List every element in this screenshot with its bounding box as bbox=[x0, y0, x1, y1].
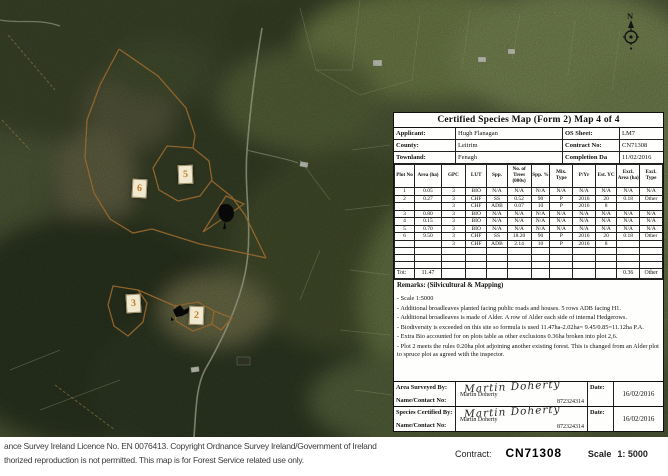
cell-excl-area bbox=[617, 248, 640, 255]
cell-spp-pct bbox=[531, 262, 550, 269]
col-spp-pct: Spp. % bbox=[531, 165, 550, 188]
species-table-header-row: Plot No Area (ha) GPC LUT Spp. No. of Tr… bbox=[395, 165, 663, 188]
form-title: Certified Species Map (Form 2) Map 4 of … bbox=[394, 113, 663, 128]
cell-plot-no bbox=[395, 248, 415, 255]
cell-excl-area bbox=[617, 240, 640, 248]
cell-p-yr: N/A bbox=[573, 225, 596, 233]
species-table-body: 1 0.05 3 BIO N/A N/A N/A N/A N/A N/A N/A… bbox=[395, 188, 663, 269]
area-surveyed-by-label: Area Surveyed By: bbox=[396, 384, 453, 391]
cell-gpc: 3 bbox=[441, 233, 465, 241]
cell-excl-type bbox=[640, 255, 663, 262]
cell-gpc bbox=[441, 248, 465, 255]
cell-plot-no: 1 bbox=[395, 188, 415, 196]
surveyor-signature-box: Martin Doherty Martin Doherty 872324314 bbox=[456, 382, 588, 406]
cell-lut bbox=[466, 248, 487, 255]
cell-spp: N/A bbox=[487, 210, 507, 218]
cell-excl-area: N/A bbox=[617, 188, 640, 196]
cell-no-of-trees: N/A bbox=[507, 210, 531, 218]
cell-spp-pct: 90 bbox=[531, 195, 550, 203]
cell-excl-type: N/A bbox=[640, 225, 663, 233]
table-row: 5 0.70 3 BIO N/A N/A N/A N/A N/A N/A N/A… bbox=[395, 225, 663, 233]
applicant-info-grid: Applicant: Hugh Flanagan OS Sheet: LM7 C… bbox=[394, 128, 663, 164]
cell-excl-area: N/A bbox=[617, 210, 640, 218]
north-label: N bbox=[627, 11, 634, 21]
cell-gpc: 3 bbox=[441, 188, 465, 196]
cell-mix-type bbox=[550, 255, 573, 262]
cell-no-of-trees bbox=[507, 262, 531, 269]
survey-date-label: Date: bbox=[588, 382, 614, 406]
applicant-label: Applicant: bbox=[394, 128, 456, 140]
certifier-printed-name: Martin Doherty bbox=[460, 417, 498, 423]
cell-no-of-trees: 0.07 bbox=[507, 203, 531, 211]
species-table: Plot No Area (ha) GPC LUT Spp. No. of Tr… bbox=[394, 164, 663, 279]
surveyor-contact-no: 872324314 bbox=[557, 399, 584, 405]
county-value: Leitrim bbox=[456, 140, 563, 152]
remarks-section: Remarks: (Silvicultural & Mapping) - Sca… bbox=[394, 279, 663, 381]
cell-excl-type: Other bbox=[640, 233, 663, 241]
plot-marker-6: 6 bbox=[132, 179, 148, 199]
cell-est-yc bbox=[595, 255, 616, 262]
cell-est-yc: 20 bbox=[595, 233, 616, 241]
cell-area bbox=[415, 240, 442, 248]
cell-mix-type: P bbox=[550, 195, 573, 203]
os-sheet-value: LM7 bbox=[620, 128, 663, 140]
cell-gpc bbox=[441, 255, 465, 262]
table-row: 3 0.80 3 BIO N/A N/A N/A N/A N/A N/A N/A… bbox=[395, 210, 663, 218]
cell-spp-pct bbox=[531, 255, 550, 262]
table-row: 6 9.50 3 CHF SS 18.20 90 P 2016 20 0.18 … bbox=[395, 233, 663, 241]
remark-line: - Plot 2 meets the rules 0.20ha plot adj… bbox=[397, 343, 660, 360]
certifier-signature-box: Martin Doherty Martin Doherty 872324314 bbox=[456, 407, 588, 431]
col-lut: LUT bbox=[466, 165, 487, 188]
cell-lut: BIO bbox=[466, 225, 487, 233]
contract-no-label: Contract No: bbox=[563, 140, 620, 152]
remark-line: - Extra Bio accounted for on plots table… bbox=[397, 333, 660, 342]
cell-no-of-trees bbox=[507, 255, 531, 262]
cell-gpc: 3 bbox=[441, 210, 465, 218]
cell-no-of-trees: 0.52 bbox=[507, 195, 531, 203]
certify-date-value: 16/02/2016 bbox=[614, 407, 663, 431]
remarks-list: - Scale 1:5000 - Additional broadleaves … bbox=[397, 295, 660, 360]
cell-spp-pct: N/A bbox=[531, 225, 550, 233]
cell-est-yc: 8 bbox=[595, 203, 616, 211]
cell-spp: N/A bbox=[487, 225, 507, 233]
screenshot-root: N 5 6 3 2 Certified Species Map (Form 2)… bbox=[0, 0, 668, 476]
cell-excl-area bbox=[617, 255, 640, 262]
species-form-panel: Certified Species Map (Form 2) Map 4 of … bbox=[393, 112, 664, 432]
total-label: Tot: bbox=[395, 269, 415, 279]
cell-excl-type: N/A bbox=[640, 210, 663, 218]
remark-line: - Scale 1:5000 bbox=[397, 295, 660, 304]
cell-lut: BIO bbox=[466, 218, 487, 226]
cell-p-yr bbox=[573, 255, 596, 262]
cell-spp-pct: N/A bbox=[531, 218, 550, 226]
col-mix-type: Mix. Type bbox=[550, 165, 573, 188]
table-row: 3 CHF ADB 2.14 10 P 2016 8 bbox=[395, 240, 663, 248]
cell-lut: CHF bbox=[466, 240, 487, 248]
col-p-yr: P/Yr bbox=[573, 165, 596, 188]
cell-est-yc: N/A bbox=[595, 225, 616, 233]
certifier-contact-no: 872324314 bbox=[557, 424, 584, 430]
cell-area bbox=[415, 203, 442, 211]
cell-plot-no bbox=[395, 255, 415, 262]
cell-spp-pct: 10 bbox=[531, 203, 550, 211]
col-spp: Spp. bbox=[487, 165, 507, 188]
col-excl-type: Excl. Type bbox=[640, 165, 663, 188]
cell-spp: ADB bbox=[487, 240, 507, 248]
applicant-value: Hugh Flanagan bbox=[456, 128, 563, 140]
cell-p-yr bbox=[573, 262, 596, 269]
os-sheet-label: OS Sheet: bbox=[563, 128, 620, 140]
cell-plot-no: 5 bbox=[395, 225, 415, 233]
cell-area: 0.15 bbox=[415, 218, 442, 226]
species-certified-by-label: Species Certified By: bbox=[396, 409, 453, 416]
cell-no-of-trees: 2.14 bbox=[507, 240, 531, 248]
copyright-notice: ance Survey Ireland Licence No. EN 00764… bbox=[4, 439, 377, 467]
remark-line: - Additional broadleaves planted facing … bbox=[397, 305, 660, 314]
cell-plot-no bbox=[395, 262, 415, 269]
cell-mix-type bbox=[550, 262, 573, 269]
cell-p-yr: 2016 bbox=[573, 203, 596, 211]
cell-lut: BIO bbox=[466, 210, 487, 218]
cell-est-yc: 8 bbox=[595, 240, 616, 248]
townland-label: Townland: bbox=[394, 152, 456, 164]
cell-gpc: 3 bbox=[441, 218, 465, 226]
completion-date-label: Completion Da bbox=[563, 152, 620, 164]
cell-area: 0.05 bbox=[415, 188, 442, 196]
copyright-line-2: thorized reproduction is not permitted. … bbox=[4, 453, 377, 467]
cell-no-of-trees: 18.20 bbox=[507, 233, 531, 241]
cell-p-yr: 2016 bbox=[573, 240, 596, 248]
copyright-line-1: ance Survey Ireland Licence No. EN 00764… bbox=[4, 439, 377, 453]
cell-excl-type bbox=[640, 203, 663, 211]
table-row bbox=[395, 248, 663, 255]
cell-excl-type bbox=[640, 240, 663, 248]
cell-spp: SS bbox=[487, 195, 507, 203]
name-contact-label: Name/Contact No: bbox=[396, 397, 453, 404]
cell-p-yr: N/A bbox=[573, 188, 596, 196]
cell-spp: N/A bbox=[487, 188, 507, 196]
cell-est-yc: N/A bbox=[595, 188, 616, 196]
cell-p-yr bbox=[573, 248, 596, 255]
cell-area: 0.70 bbox=[415, 225, 442, 233]
cell-excl-type bbox=[640, 248, 663, 255]
cell-spp-pct: N/A bbox=[531, 188, 550, 196]
cell-lut bbox=[466, 262, 487, 269]
surveyor-printed-name: Martin Doherty bbox=[460, 392, 498, 398]
cell-plot-no: 6 bbox=[395, 233, 415, 241]
cell-p-yr: 2016 bbox=[573, 233, 596, 241]
species-certified-row: Species Certified By: Name/Contact No: M… bbox=[394, 406, 663, 431]
total-row: Tot: 11.47 0.36 Other bbox=[395, 269, 663, 279]
cell-excl-area: N/A bbox=[617, 218, 640, 226]
cell-excl-type: N/A bbox=[640, 218, 663, 226]
cell-lut bbox=[466, 255, 487, 262]
cell-spp-pct: N/A bbox=[531, 210, 550, 218]
cell-spp-pct bbox=[531, 248, 550, 255]
scale-value: 1: 5000 bbox=[617, 449, 648, 459]
contract-label: Contract: bbox=[455, 449, 492, 459]
cell-est-yc bbox=[595, 248, 616, 255]
total-area: 11.47 bbox=[415, 269, 442, 279]
plot-marker-5: 5 bbox=[178, 165, 194, 185]
cell-spp-pct: 90 bbox=[531, 233, 550, 241]
table-row: 3 CHF ADB 0.07 10 P 2016 8 bbox=[395, 203, 663, 211]
table-row: 2 0.27 3 CHF SS 0.52 90 P 2016 20 0.18 O… bbox=[395, 195, 663, 203]
cell-est-yc bbox=[595, 262, 616, 269]
cell-no-of-trees: N/A bbox=[507, 225, 531, 233]
remark-line: - Additional broadleaves is made of Alde… bbox=[397, 314, 660, 323]
total-excl-type: Other bbox=[640, 269, 663, 279]
cell-area: 9.50 bbox=[415, 233, 442, 241]
cell-spp: N/A bbox=[487, 218, 507, 226]
cell-plot-no: 4 bbox=[395, 218, 415, 226]
col-plot-no: Plot No bbox=[395, 165, 415, 188]
table-row: 4 0.15 3 BIO N/A N/A N/A N/A N/A N/A N/A… bbox=[395, 218, 663, 226]
cell-area: 0.27 bbox=[415, 195, 442, 203]
cell-area bbox=[415, 255, 442, 262]
cell-no-of-trees: N/A bbox=[507, 188, 531, 196]
cell-mix-type: N/A bbox=[550, 218, 573, 226]
cell-mix-type: N/A bbox=[550, 225, 573, 233]
townland-value: Fenagh bbox=[456, 152, 563, 164]
cell-spp-pct: 10 bbox=[531, 240, 550, 248]
cell-excl-area: 0.18 bbox=[617, 233, 640, 241]
cell-gpc bbox=[441, 262, 465, 269]
cell-gpc: 3 bbox=[441, 203, 465, 211]
cell-spp bbox=[487, 262, 507, 269]
cell-excl-area: 0.18 bbox=[617, 195, 640, 203]
cell-p-yr: N/A bbox=[573, 218, 596, 226]
contract-footer: Contract: CN71308 Scale 1: 5000 bbox=[455, 446, 648, 460]
cell-area: 0.80 bbox=[415, 210, 442, 218]
col-est-yc: Est. YC bbox=[595, 165, 616, 188]
cell-no-of-trees: N/A bbox=[507, 218, 531, 226]
cell-no-of-trees bbox=[507, 248, 531, 255]
cell-spp: ADB bbox=[487, 203, 507, 211]
cell-mix-type: P bbox=[550, 203, 573, 211]
cell-area bbox=[415, 262, 442, 269]
cell-lut: CHF bbox=[466, 203, 487, 211]
name-contact-label: Name/Contact No: bbox=[396, 422, 453, 429]
cell-excl-type: N/A bbox=[640, 188, 663, 196]
remarks-heading: Remarks: (Silvicultural & Mapping) bbox=[397, 282, 660, 289]
plot-marker-3: 3 bbox=[126, 294, 142, 314]
table-row bbox=[395, 255, 663, 262]
total-excl-area: 0.36 bbox=[617, 269, 640, 279]
col-excl-area: Excl. Area (ha) bbox=[617, 165, 640, 188]
cell-mix-type: N/A bbox=[550, 210, 573, 218]
contract-no-value: CN71308 bbox=[620, 140, 663, 152]
cell-lut: CHF bbox=[466, 233, 487, 241]
cell-p-yr: N/A bbox=[573, 210, 596, 218]
cell-mix-type: N/A bbox=[550, 188, 573, 196]
cell-spp bbox=[487, 255, 507, 262]
bottom-strip: ance Survey Ireland Licence No. EN 00764… bbox=[0, 437, 668, 476]
col-area: Area (ha) bbox=[415, 165, 442, 188]
cell-est-yc: 20 bbox=[595, 195, 616, 203]
remark-line: - Biodiversity is exceeded on this site … bbox=[397, 324, 660, 333]
cell-spp: SS bbox=[487, 233, 507, 241]
cell-spp bbox=[487, 248, 507, 255]
cell-excl-type: Other bbox=[640, 195, 663, 203]
cell-plot-no: 3 bbox=[395, 210, 415, 218]
scale-label: Scale bbox=[588, 449, 612, 459]
cell-plot-no bbox=[395, 203, 415, 211]
cell-gpc: 3 bbox=[441, 195, 465, 203]
cell-est-yc: N/A bbox=[595, 218, 616, 226]
area-surveyed-row: Area Surveyed By: Name/Contact No: Marti… bbox=[394, 381, 663, 406]
certify-date-label: Date: bbox=[588, 407, 614, 431]
plot-marker-2: 2 bbox=[189, 306, 205, 326]
contract-number: CN71308 bbox=[506, 446, 562, 460]
cell-mix-type: P bbox=[550, 240, 573, 248]
cell-excl-area: N/A bbox=[617, 225, 640, 233]
cell-area bbox=[415, 248, 442, 255]
col-gpc: GPC bbox=[441, 165, 465, 188]
county-label: County: bbox=[394, 140, 456, 152]
cell-plot-no bbox=[395, 240, 415, 248]
survey-date-value: 16/02/2016 bbox=[614, 382, 663, 406]
cell-mix-type bbox=[550, 248, 573, 255]
cell-excl-area bbox=[617, 203, 640, 211]
cell-lut: CHF bbox=[466, 195, 487, 203]
table-row: 1 0.05 3 BIO N/A N/A N/A N/A N/A N/A N/A… bbox=[395, 188, 663, 196]
cell-excl-area bbox=[617, 262, 640, 269]
completion-date-value: 11/02/2016 bbox=[620, 152, 663, 164]
cell-gpc: 3 bbox=[441, 240, 465, 248]
cell-p-yr: 2016 bbox=[573, 195, 596, 203]
col-no-of-trees: No. of Trees (000s) bbox=[507, 165, 531, 188]
cell-lut: BIO bbox=[466, 188, 487, 196]
cell-mix-type: P bbox=[550, 233, 573, 241]
cell-excl-type bbox=[640, 262, 663, 269]
table-row bbox=[395, 262, 663, 269]
cell-est-yc: N/A bbox=[595, 210, 616, 218]
cell-plot-no: 2 bbox=[395, 195, 415, 203]
cell-gpc: 3 bbox=[441, 225, 465, 233]
